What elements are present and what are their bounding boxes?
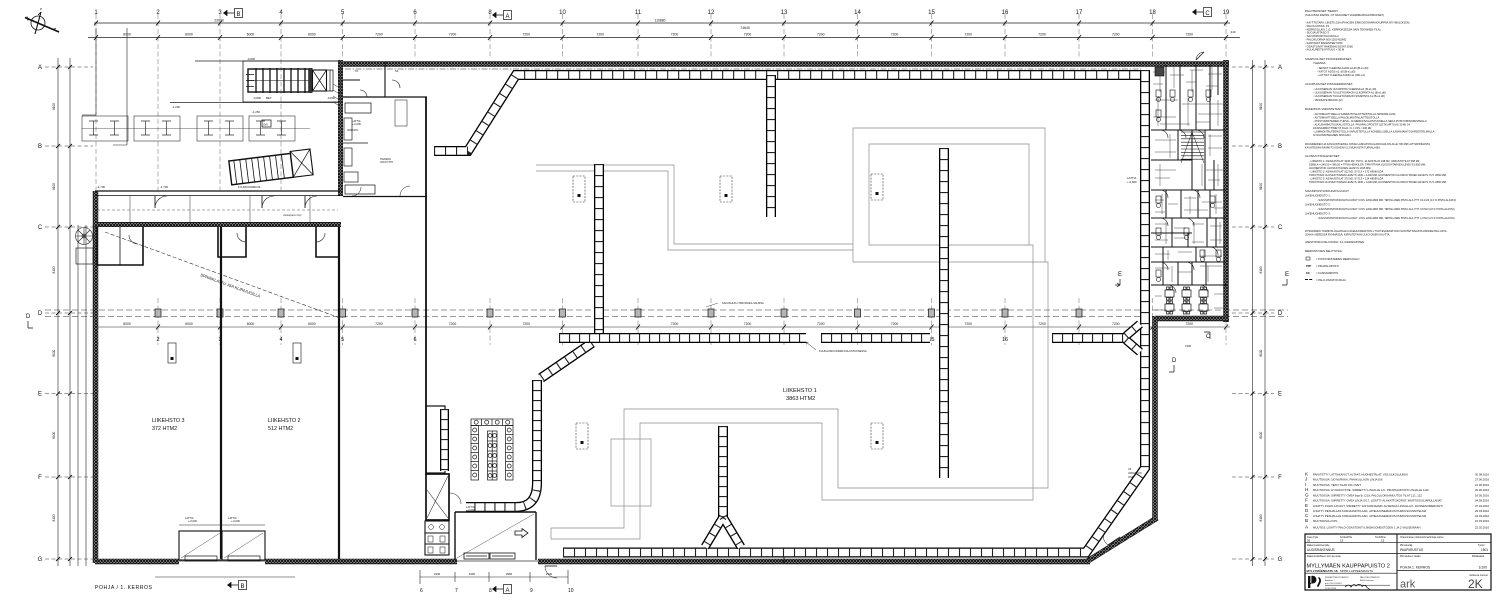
svg-text:- PALOKUORMA 600-1200 MJ/M2: - PALOKUORMA 600-1200 MJ/M2 xyxy=(1305,38,1347,42)
svg-text:8100: 8100 xyxy=(52,103,56,110)
svg-text:PPP: PPP xyxy=(1306,264,1311,268)
svg-text:- ALKUSAMMUTUSKALUSTOLLA: PIKA: - ALKUSAMMUTUSKALUSTOLLA: PIKAPALOPOSTIT… xyxy=(1313,123,1410,127)
svg-text:8100: 8100 xyxy=(1259,103,1263,110)
svg-text:HUONEISTON ULOSKAYTAVIEN LEVEY: HUONEISTON ULOSKAYTAVIEN LEVEYS 1915 MM. xyxy=(1309,166,1371,170)
svg-text:MUUTOKSIA: HYOKKAYSTIE, SIIRRE: MUUTOKSIA: HYOKKAYSTIE, SIIRRETTY LINJAL… xyxy=(1313,488,1429,492)
svg-text:+-0,000: +-0,000 xyxy=(1127,180,1137,184)
svg-text:512 HTM2: 512 HTM2 xyxy=(268,426,293,432)
svg-text:16: 16 xyxy=(1002,337,1008,343)
svg-text:D: D xyxy=(38,311,43,317)
svg-text:7200: 7200 xyxy=(1185,344,1192,348)
svg-text:21.06.2016: 21.06.2016 xyxy=(1475,483,1489,487)
svg-text:POHJA 1. KERROS: POHJA 1. KERROS xyxy=(1400,566,1431,570)
svg-text:= KASISAMMUTIN: = KASISAMMUTIN xyxy=(1316,271,1338,275)
svg-text:MUUTOKSIA: TEKN.TILAN 151 OVET: MUUTOKSIA: TEKN.TILAN 151 OVET xyxy=(1313,483,1361,487)
svg-text:SAVUNPOISTOIKKUNAT/LUUKUT:: SAVUNPOISTOIKKUNAT/LUUKUT: xyxy=(1305,189,1350,193)
svg-text:8100: 8100 xyxy=(1259,514,1263,521)
svg-text:8100: 8100 xyxy=(1259,349,1263,356)
svg-text:VARASTO: VARASTO xyxy=(347,129,358,132)
svg-text:6000: 6000 xyxy=(185,322,193,326)
svg-text:2: 2 xyxy=(156,337,159,343)
svg-text:J: J xyxy=(1305,477,1307,482)
svg-text:- LIIKESTO 2: ASIAKASTILAT 512: - LIIKESTO 2: ASIAKASTILAT 512 M2, SYO,3… xyxy=(1309,170,1383,174)
svg-text:- SAVUNPOISTOIKKUNAT/LUUKUT 1: - SAVUNPOISTOIKKUNAT/LUUKUT 1 KPL 1200x1… xyxy=(1317,217,1455,220)
svg-text:+-0,000: +-0,000 xyxy=(352,122,361,126)
svg-text:+-0,000: +-0,000 xyxy=(231,519,240,523)
svg-text:VAESTONSUOJALUOKKIA: K1, KIERA: VAESTONSUOJALUOKKIA: K1, KIERAPAINTEN. xyxy=(1305,240,1365,244)
svg-text:A: A xyxy=(1278,65,1282,71)
svg-text:A: A xyxy=(505,14,509,20)
svg-text:MUUTOKSIA 2 KPL: MUUTOKSIA 2 KPL xyxy=(1313,519,1338,523)
svg-text:6: 6 xyxy=(413,337,416,343)
svg-text:Rakennuskohteen nimi ja osoite: Rakennuskohteen nimi ja osoite xyxy=(1307,555,1342,558)
svg-text:-1,250: -1,250 xyxy=(252,110,260,114)
svg-text:E: E xyxy=(38,392,42,398)
svg-text:C: C xyxy=(38,225,43,231)
svg-text:Piirustuksen sisalto: Piirustuksen sisalto xyxy=(1400,555,1421,558)
svg-text:SK: SK xyxy=(395,69,399,73)
svg-text:7200: 7200 xyxy=(744,33,752,37)
svg-text:LIIKEHUONEISTO 2:: LIIKEHUONEISTO 2: xyxy=(1305,203,1331,207)
svg-text:- ULKOSEINAN TUULETUSRAON SISA: - ULKOSEINAN TUULETUSRAON SISAPINTA A1 (… xyxy=(1313,94,1385,98)
svg-text:- OSASTOIVAT RAKENNUSOSAT: EI6: - OSASTOIVAT RAKENNUSOSAT: EI60 xyxy=(1305,44,1353,48)
svg-text:16.05.2016: 16.05.2016 xyxy=(1475,493,1489,497)
svg-text:7200: 7200 xyxy=(375,33,383,37)
svg-text:74640: 74640 xyxy=(740,26,750,30)
svg-text:19: 19 xyxy=(1223,10,1230,16)
svg-text:SUUNNITTELUTOIMISTO: SUUNNITTELUTOIMISTO xyxy=(1325,577,1349,579)
svg-text:8100: 8100 xyxy=(52,431,56,438)
svg-text:17: 17 xyxy=(1076,10,1083,16)
svg-text:- SAVUNPOISTOIKKUNAT/LUUKUT 9: - SAVUNPOISTOIKKUNAT/LUUKUT 9 KPL 1200x1… xyxy=(1317,199,1456,202)
svg-text:- KULKUREITIN PITUUS < 30 M: - KULKUREITIN PITUUS < 30 M xyxy=(1305,48,1345,52)
svg-text:B: B xyxy=(38,144,42,150)
svg-text:OSA: OSA xyxy=(1128,476,1134,479)
svg-text:KS: KS xyxy=(1306,271,1310,275)
svg-text:7200: 7200 xyxy=(375,322,383,326)
svg-text:PAULI NUUTINEN KY: PAULI NUUTINEN KY xyxy=(1360,576,1380,579)
svg-text:9: 9 xyxy=(530,588,533,594)
svg-text:8100: 8100 xyxy=(52,266,56,273)
svg-text:6000: 6000 xyxy=(123,322,131,326)
svg-text:- SAVUNPOISTOLUOKKA 2: - SAVUNPOISTOLUOKKA 2 xyxy=(1305,34,1339,38)
svg-text:7200: 7200 xyxy=(891,33,899,37)
svg-text:POHJA / 1. KERROS: POHJA / 1. KERROS xyxy=(95,585,153,591)
svg-text:Piirustuslaji: Piirustuslaji xyxy=(1400,544,1413,547)
svg-text:G: G xyxy=(1278,557,1283,563)
svg-text:E: E xyxy=(1285,272,1289,278)
svg-text:- AUTOMAATTISELLA PALOILMOITIN: - AUTOMAATTISELLA PALOILMOITINLAITTEISTO… xyxy=(1313,116,1379,120)
svg-text:6000: 6000 xyxy=(247,33,255,37)
svg-text:3960: 3960 xyxy=(506,572,513,576)
svg-text:- KERROSLUKU 1 (2. KERROKSESSA: - KERROSLUKU 1 (2. KERROKSESSA VAIN TEKN… xyxy=(1305,27,1381,31)
svg-text:- SAVUNPOISTOIKKUNAT/LUUKUT 2: - SAVUNPOISTOIKKUNAT/LUUKUT 2 KPL 1200x1… xyxy=(1317,208,1455,211)
svg-text:-1,700: -1,700 xyxy=(160,185,168,189)
svg-text:= PIKAPALOPOSTI: = PIKAPALOPOSTI xyxy=(1316,264,1339,268)
svg-text:LIIKEHUONEISTO 3:: LIIKEHUONEISTO 3: xyxy=(1305,212,1331,216)
svg-text:2340: 2340 xyxy=(434,572,441,576)
svg-text:VARASTON: VARASTON xyxy=(1128,472,1142,475)
svg-text:6000: 6000 xyxy=(247,322,255,326)
svg-text:2K: 2K xyxy=(1468,577,1483,591)
svg-text:372 HTM2: 372 HTM2 xyxy=(152,426,177,432)
svg-text:6000: 6000 xyxy=(308,322,316,326)
svg-text:Rakennustoimenpide: Rakennustoimenpide xyxy=(1307,544,1330,547)
svg-text:LIIKEHUONEISTO 1:: LIIKEHUONEISTO 1: xyxy=(1305,194,1331,198)
svg-text:8100: 8100 xyxy=(52,514,56,521)
svg-text:BET.: BET. xyxy=(266,96,272,100)
svg-text:IV-SUUNNITELMIEN MUKAAN: IV-SUUNNITELMIEN MUKAAN xyxy=(1313,133,1351,137)
svg-text:LISATTY KOLIN LAYOUT, SIIRRETT: LISATTY KOLIN LAYOUT, SIIRRETTY 120 KORJ… xyxy=(1313,504,1443,508)
svg-text:MERKINTOJEN SELITYKSIA:: MERKINTOJEN SELITYKSIA: xyxy=(1305,249,1343,253)
svg-text:- KATOT A2/D2-s1, d0 (B-s1,d0): - KATOT A2/D2-s1, d0 (B-s1,d0) xyxy=(1317,70,1355,74)
svg-text:07.04.2016: 07.04.2016 xyxy=(1475,504,1489,508)
svg-text:SISAPUOLISET PINTAKERROKSET:: SISAPUOLISET PINTAKERROKSET: xyxy=(1305,57,1352,61)
svg-text:3863 HTM2: 3863 HTM2 xyxy=(786,396,815,402)
svg-text:- SUOJAUSTASO 3: - SUOJAUSTASO 3 xyxy=(1305,31,1329,35)
svg-text:+-0,000: +-0,000 xyxy=(188,519,197,523)
svg-text:24.03.2016: 24.03.2016 xyxy=(1475,514,1489,518)
svg-text:Aatokatu 7: Aatokatu 7 xyxy=(1325,579,1335,582)
svg-text:+-0,000: +-0,000 xyxy=(466,508,475,512)
svg-text:23900: 23900 xyxy=(214,19,224,23)
svg-text:uloskaytava 4 kpl: uloskaytava 4 kpl xyxy=(283,214,302,217)
svg-text:7200: 7200 xyxy=(1038,322,1046,326)
svg-text:1/100: 1/100 xyxy=(1479,566,1488,570)
svg-text:UUDISRAKENNUS: UUDISRAKENNUS xyxy=(1307,548,1335,552)
svg-text:- SEINAT YLEENSA A1/D2-s2,d0: - SEINAT YLEENSA A1/D2-s2,d0 (B-s1,d0) xyxy=(1317,66,1368,70)
svg-text:LISATTY PESUALLAS KORJAAMOTILA: LISATTY PESUALLAS KORJAAMOTILAAN, JATEHU… xyxy=(1313,514,1426,518)
svg-text:SAVUSULKU TARVIKKEA VALISSA: SAVUSULKU TARVIKKEA VALISSA xyxy=(722,301,764,305)
svg-text:LIIKEHSTO 3: LIIKEHSTO 3 xyxy=(152,418,185,424)
svg-text:- LIIKESTO 3: ASIAKASTILAT 372: - LIIKESTO 3: ASIAKASTILAT 372 M2, SYO,3… xyxy=(1309,177,1383,181)
svg-text:-0,800: -0,800 xyxy=(253,96,261,100)
svg-text:8100: 8100 xyxy=(52,183,56,190)
svg-text:22.02.2016: 22.02.2016 xyxy=(1475,526,1489,530)
svg-text:D: D xyxy=(26,314,31,320)
svg-text:18: 18 xyxy=(1149,10,1156,16)
svg-text:VAST.OTTO: VAST.OTTO xyxy=(380,161,393,164)
svg-text:27.06.2016: 27.06.2016 xyxy=(1475,478,1489,482)
svg-text:1960: 1960 xyxy=(469,572,476,576)
svg-text:= PALO-OSASTON RAJA: = PALO-OSASTON RAJA xyxy=(1316,278,1346,282)
svg-text:10: 10 xyxy=(568,588,574,594)
svg-text:MUUTOKSIA: SIIRRETTY OVEA LINJ: MUUTOKSIA: SIIRRETTY OVEA LINJA G/17, LI… xyxy=(1313,499,1442,503)
svg-text:MYLLYMÄENKATU 18: MYLLYMÄENKATU 18 xyxy=(1307,569,1338,573)
svg-text:KASISAMMUTTIMET 8 KG/A, N. 1 K: KASISAMMUTTIMET 8 KG/A, N. 1 KPL / 400 M… xyxy=(1313,126,1372,130)
svg-text:16: 16 xyxy=(1002,10,1009,16)
svg-text:RAKENNUS VARUSTETAAN:: RAKENNUS VARUSTETAAN: xyxy=(1305,107,1343,111)
svg-text:1501: 1501 xyxy=(1481,548,1488,552)
svg-text:8: 8 xyxy=(489,588,492,594)
svg-text:PAAPIIRUSTUS: PAAPIIRUSTUS xyxy=(1400,548,1423,552)
svg-text:14: 14 xyxy=(854,10,861,16)
svg-text:7200: 7200 xyxy=(1185,33,1193,37)
svg-text:SSIMLA = 240/10 = 386,50 = TFS: SSIMLA = 240/10 = 386,50 = TFSN HENKILÖÄ… xyxy=(1309,163,1426,167)
svg-text:MUUTOKSIA: SIIRRETTY OVEA linj: MUUTOKSIA: SIIRRETTY OVEA linja B..C/19,… xyxy=(1313,493,1422,497)
svg-text:110880: 110880 xyxy=(654,19,665,23)
svg-text:15: 15 xyxy=(928,10,935,16)
svg-text:80100 Joensuu: 80100 Joensuu xyxy=(1360,580,1374,582)
svg-text:D: D xyxy=(1278,311,1283,317)
svg-text:G: G xyxy=(38,557,43,563)
svg-text:- PALOLUOKKA: P1: - PALOLUOKKA: P1 xyxy=(1305,24,1330,28)
svg-text:7200: 7200 xyxy=(1185,322,1193,326)
svg-text:= POISTUMISTEIDEN MERKKIVALO: = POISTUMISTEIDEN MERKKIVALO xyxy=(1316,257,1359,261)
svg-text:- POISTUMISTEIDEN TURVA- JA ME: - POISTUMISTEIDEN TURVA- JA MERKKIVALAIS… xyxy=(1313,119,1427,123)
svg-text:E: E xyxy=(1118,272,1122,278)
svg-text:6000: 6000 xyxy=(308,33,316,37)
svg-text:Mittakaavat: Mittakaavat xyxy=(1472,555,1485,558)
svg-text:- AUTOMAATTISELLA SAMMUTUSLAIT: - AUTOMAATTISELLA SAMMUTUSLAITTEISTOLLA … xyxy=(1313,112,1396,116)
svg-text:7200: 7200 xyxy=(1112,33,1120,37)
svg-text:C: C xyxy=(1278,225,1283,231)
svg-text:JONKA VIERESSÄ RYHMÄSSÄ, KIRPU: JONKA VIERESSÄ RYHMÄSSÄ, KIRPUTETAAN ULK… xyxy=(1305,233,1390,237)
svg-text:7200: 7200 xyxy=(671,322,679,326)
svg-text:- LAMMONTALTEENOTOLLA VARUSTET: - LAMMONTALTEENOTOLLA VARUSTETULLA KONEE… xyxy=(1313,130,1435,134)
svg-text:puh. 013 123 4567: puh. 013 123 4567 xyxy=(1325,583,1343,585)
svg-text:- ULKOSEINAN TUULETUSRAON ULKO: - ULKOSEINAN TUULETUSRAON ULKOPINTA A1 (… xyxy=(1313,91,1386,95)
svg-text:20.06.2016: 20.06.2016 xyxy=(1475,488,1489,492)
svg-text:LIIKEHSTO 1: LIIKEHSTO 1 xyxy=(783,388,817,394)
svg-text:Viranomaisen arkistointimerkin: Viranomaisen arkistointimerkintoja varte… xyxy=(1400,536,1444,539)
svg-text:TARVITTAVA ULOSKAYTAVIEN LEVEY: TARVITTAVA ULOSKAYTAVIEN LEVEYS 1200 + 1… xyxy=(1309,173,1447,177)
svg-text:- ULKOSEINAN ULKOPINTA YLEENSA: - ULKOSEINAN ULKOPINTA YLEENSA A1 (B-s1,… xyxy=(1313,87,1376,91)
svg-text:- KAYTTOTAPA: LIIKETILOJA (PAA: - KAYTTOTAPA: LIIKETILOJA (PAAOSIN ERIKO… xyxy=(1305,21,1410,25)
svg-text:5: 5 xyxy=(341,337,344,343)
svg-text:53550 LAPPEENRANTA: 53550 LAPPEENRANTA xyxy=(1340,569,1373,573)
svg-text:ULKOPUOLISET PINTAKERROKSET:: ULKOPUOLISET PINTAKERROKSET: xyxy=(1305,82,1353,86)
svg-text:7200: 7200 xyxy=(891,322,899,326)
svg-text:KUUKAUSIKUORMA KALUSTUKSESSA: KUUKAUSIKUORMA KALUSTUKSESSA xyxy=(819,349,867,353)
svg-text:7200: 7200 xyxy=(817,322,825,326)
svg-text:15: 15 xyxy=(1340,539,1344,543)
svg-text:F: F xyxy=(38,475,42,481)
svg-text:240: 240 xyxy=(1230,30,1235,34)
svg-text:MUUTOKSIA: 1/D NURKKA, PIHAKUL: MUUTOKSIA: 1/D NURKKA, PIHAKULLAON LINJA… xyxy=(1313,478,1383,482)
svg-text:7200: 7200 xyxy=(449,322,457,326)
svg-text:6000: 6000 xyxy=(185,33,193,37)
svg-text:11: 11 xyxy=(635,10,642,16)
svg-text:B: B xyxy=(240,584,244,590)
svg-text:7200: 7200 xyxy=(817,33,825,37)
svg-text:- VESIKATE BROOF (t2): - VESIKATE BROOF (t2) xyxy=(1313,98,1343,102)
svg-text:13: 13 xyxy=(781,10,788,16)
svg-text:(SULUISSA RAKNN. OT MUKAISET V: (SULUISSA RAKNN. OT MUKAISET VAHIMMAISVA… xyxy=(1305,13,1384,17)
svg-text:10: 10 xyxy=(559,10,566,16)
svg-text:15.03.2016: 15.03.2016 xyxy=(1475,519,1489,523)
svg-text:ROUHDEIDEN JA KASUUNTUESSA JOS: ROUHDEIDEN JA KASUUNTUESSA JOSSA LASKAPO… xyxy=(1305,142,1431,146)
svg-text:PAIVITETTY LATTIAKAIVOT, ALTAA: PAIVITETTY LATTIAKAIVOT, ALTAAT, HUONEST… xyxy=(1313,473,1408,477)
svg-text:12: 12 xyxy=(708,10,715,16)
svg-text:SVK: SVK xyxy=(263,124,268,127)
svg-text:C: C xyxy=(1205,11,1210,17)
svg-text:29.03.2016: 29.03.2016 xyxy=(1475,509,1489,513)
svg-text:-0,800: -0,800 xyxy=(247,57,255,61)
svg-text:B: B xyxy=(236,12,240,18)
svg-text:KYLKIKUORMAUS: KYLKIKUORMAUS xyxy=(238,185,261,189)
svg-text:E: E xyxy=(1278,392,1282,398)
svg-text:TARVITTAVA ULOSKAYTAVIEN LEVEY: TARVITTAVA ULOSKAYTAVIEN LEVEYS 1200 + 1… xyxy=(1309,180,1447,184)
svg-text:7200: 7200 xyxy=(671,33,679,37)
svg-text:Tyono: Tyono xyxy=(1478,544,1485,547)
svg-text:D: D xyxy=(1172,358,1177,364)
svg-text:-1,700: -1,700 xyxy=(97,185,105,189)
svg-text:7200: 7200 xyxy=(744,322,752,326)
svg-text:ark: ark xyxy=(1400,579,1416,591)
svg-text:A: A xyxy=(505,588,509,594)
svg-text:30.08.2016: 30.08.2016 xyxy=(1475,473,1489,477)
svg-text:PALOTEKNISET TIEDOT:: PALOTEKNISET TIEDOT: xyxy=(1305,9,1339,13)
svg-text:B: B xyxy=(1305,518,1308,523)
svg-text:ULOSKAYTAVALEVEYDET:: ULOSKAYTAVALEVEYDET: xyxy=(1305,154,1340,158)
svg-text:F: F xyxy=(1278,475,1282,481)
svg-text:8100: 8100 xyxy=(1259,183,1263,190)
svg-text:7200: 7200 xyxy=(596,33,604,37)
svg-text:- KANTAVAT RAKENTEET R60: - KANTAVAT RAKENTEET R60 xyxy=(1305,41,1343,45)
svg-text:7200: 7200 xyxy=(522,322,530,326)
svg-text:-1,200: -1,200 xyxy=(172,105,180,109)
svg-text:8100: 8100 xyxy=(52,349,56,356)
svg-text:TK: TK xyxy=(355,69,359,73)
svg-text:12.02.2016: 12.02.2016 xyxy=(1325,588,1337,590)
svg-text:7200: 7200 xyxy=(1038,33,1046,37)
svg-text:YLEENSA: YLEENSA xyxy=(1313,61,1326,65)
svg-text:RYSMOIDEN TOIMINTA OHJATAAN LI: RYSMOIDEN TOIMINTA OHJATAAN LIIKEHUONEIS… xyxy=(1305,229,1447,233)
svg-text:15: 15 xyxy=(1381,539,1385,543)
svg-text:2340: 2340 xyxy=(546,572,553,576)
svg-text:- LATTIAT YLEENSA A1/DFl-s1 (D: - LATTIAT YLEENSA A1/DFl-s1 (DFl-s1) xyxy=(1317,73,1365,77)
svg-text:KAYHTEISIIN RAAMI F2 KOHDAN 3.: KAYHTEISIIN RAAMI F2 KOHDAN 3.2 MUKAISTA… xyxy=(1305,146,1381,150)
svg-text:UK: UK xyxy=(1128,468,1132,471)
svg-text:7200: 7200 xyxy=(964,322,972,326)
svg-text:B: B xyxy=(1278,144,1282,150)
svg-text:56: 56 xyxy=(1307,539,1311,543)
svg-text:8100: 8100 xyxy=(1259,266,1263,273)
svg-text:A: A xyxy=(38,65,42,71)
svg-text:MUUTOS, LISATTY PALO-OSASTOINT: MUUTOS, LISATTY PALO-OSASTOINTI LIIKEHUO… xyxy=(1313,526,1421,530)
svg-text:04.05.2016: 04.05.2016 xyxy=(1475,499,1489,503)
svg-text:8100: 8100 xyxy=(1259,431,1263,438)
svg-text:6: 6 xyxy=(420,588,423,594)
svg-text:7200: 7200 xyxy=(964,33,972,37)
svg-text:7200: 7200 xyxy=(522,33,530,37)
svg-text:LISATTY PESUALLAS KORJAAMOTILA: LISATTY PESUALLAS KORJAAMOTILAAN, JATEHU… xyxy=(1313,509,1426,513)
svg-text:P: P xyxy=(40,7,42,11)
svg-text:- LIIKESTO 1: ASIAKASTILAT 323: - LIIKESTO 1: ASIAKASTILAT 3236 M2, TSTO… xyxy=(1309,159,1420,163)
svg-text:7200: 7200 xyxy=(1112,322,1120,326)
svg-text:4: 4 xyxy=(279,337,282,343)
svg-text:7200: 7200 xyxy=(449,33,457,37)
svg-text:LIIKEHSTO 2: LIIKEHSTO 2 xyxy=(268,418,301,424)
svg-text:7: 7 xyxy=(455,588,458,594)
